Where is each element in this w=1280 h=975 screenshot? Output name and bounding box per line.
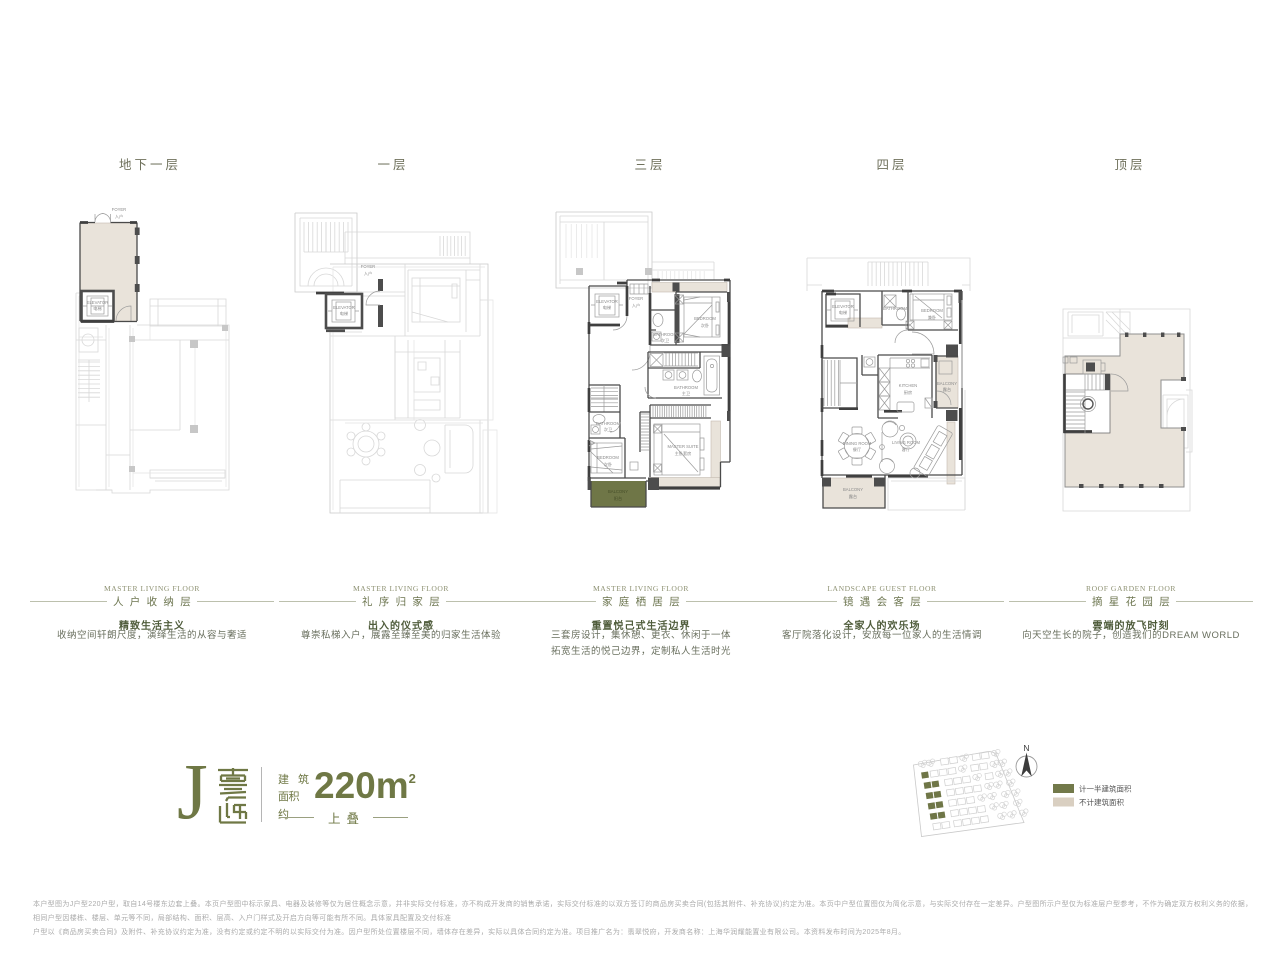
svg-text:KITCHEN: KITCHEN (899, 383, 917, 388)
svg-text:DINING ROOM: DINING ROOM (843, 441, 872, 446)
svg-text:BEDROOM: BEDROOM (597, 455, 619, 460)
svg-text:电梯: 电梯 (340, 310, 348, 317)
svg-text:LIVING ROOM: LIVING ROOM (892, 440, 920, 445)
svg-text:入户: 入户 (364, 270, 372, 277)
svg-text:餐厅: 餐厅 (853, 446, 861, 453)
svg-text:露台: 露台 (849, 493, 857, 500)
svg-text:兼卧: 兼卧 (928, 314, 936, 321)
svg-text:主卧套房: 主卧套房 (675, 450, 692, 457)
svg-text:FOYER: FOYER (361, 264, 375, 269)
svg-text:BATHROOM: BATHROOM (674, 385, 698, 390)
svg-text:BEDROOM: BEDROOM (694, 316, 716, 321)
svg-text:BATHROOM: BATHROOM (596, 421, 620, 426)
svg-text:BALCONY: BALCONY (937, 381, 957, 386)
svg-text:电梯: 电梯 (603, 304, 611, 311)
svg-text:FOYER: FOYER (629, 296, 643, 301)
svg-text:BATHROOM: BATHROOM (883, 306, 907, 311)
svg-text:ELEVATOR: ELEVATOR (333, 305, 355, 310)
svg-text:计一半建筑面积: 计一半建筑面积 (1079, 784, 1132, 794)
svg-text:露台: 露台 (943, 386, 951, 393)
svg-text:入户: 入户 (632, 302, 640, 309)
svg-text:次卫: 次卫 (661, 337, 669, 344)
svg-text:BALCONY: BALCONY (843, 487, 863, 492)
svg-text:阳台: 阳台 (614, 495, 622, 502)
svg-text:次卧: 次卧 (604, 461, 612, 468)
svg-text:主卫: 主卫 (682, 390, 690, 396)
svg-text:BEDROOM: BEDROOM (921, 308, 943, 313)
svg-text:ELEVATOR: ELEVATOR (596, 299, 618, 304)
svg-text:FOYER: FOYER (112, 207, 126, 212)
svg-text:次卧: 次卧 (701, 322, 709, 329)
svg-text:ELEVATOR: ELEVATOR (87, 300, 109, 305)
svg-text:电梯: 电梯 (93, 305, 101, 312)
svg-text:入户: 入户 (115, 213, 123, 220)
svg-text:客厅: 客厅 (902, 446, 910, 453)
svg-text:不计建筑面积: 不计建筑面积 (1079, 797, 1124, 807)
svg-text:电梯: 电梯 (839, 309, 847, 316)
svg-text:BATHROOM: BATHROOM (653, 332, 677, 337)
svg-text:MASTER SUITE: MASTER SUITE (668, 444, 699, 449)
svg-text:BALCONY: BALCONY (608, 489, 628, 494)
svg-text:N: N (1023, 743, 1029, 753)
svg-text:ELEVATOR: ELEVATOR (832, 304, 854, 309)
svg-text:厨房: 厨房 (904, 389, 912, 396)
